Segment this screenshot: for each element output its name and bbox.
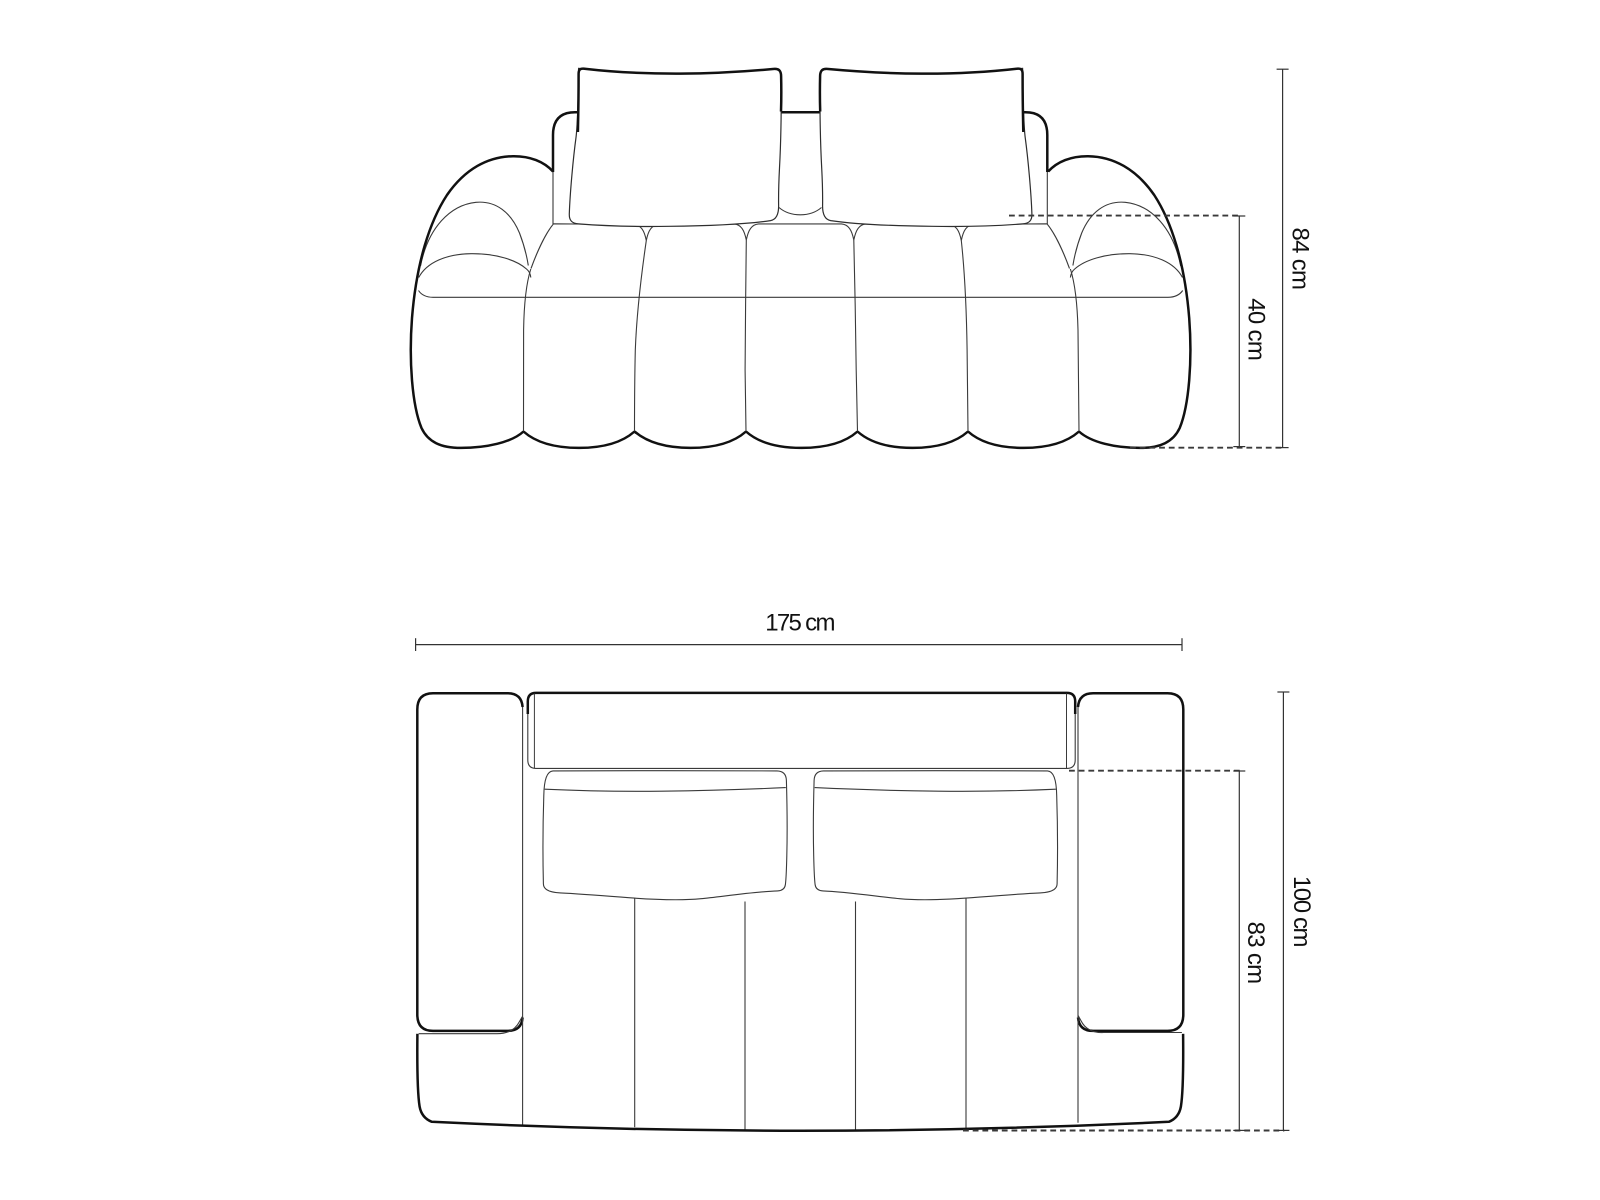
svg-text:84 cm: 84 cm [1287,227,1314,289]
svg-text:40 cm: 40 cm [1243,298,1270,360]
svg-text:175 cm: 175 cm [765,610,834,637]
svg-text:100 cm: 100 cm [1288,876,1315,947]
svg-text:83 cm: 83 cm [1242,922,1269,984]
